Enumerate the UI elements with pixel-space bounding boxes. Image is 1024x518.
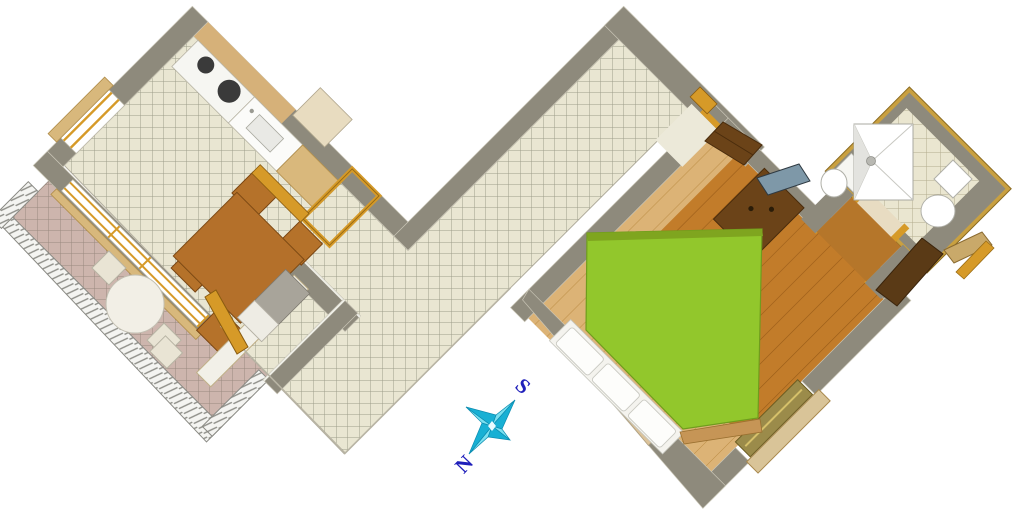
svg-text:S: S	[511, 373, 536, 399]
svg-text:N: N	[450, 450, 478, 478]
